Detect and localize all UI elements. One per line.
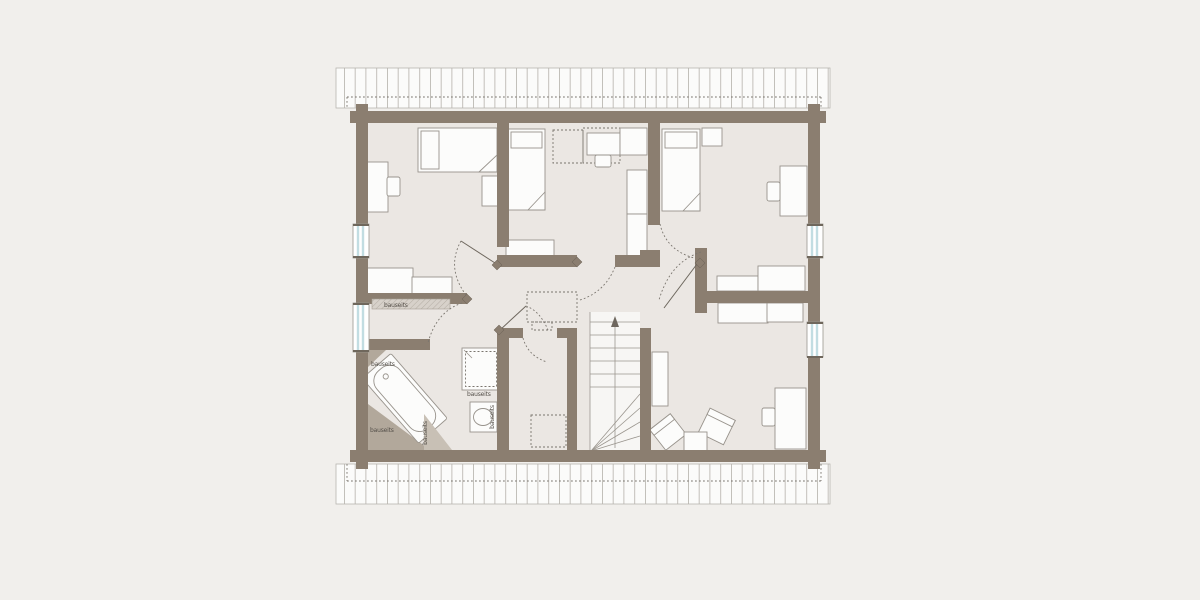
window-left-1 <box>353 224 369 258</box>
desk <box>587 133 620 155</box>
partition-wall <box>557 328 577 338</box>
floor-plan-svg: bauseits bauseits bauseits bauseits baus… <box>0 0 1200 600</box>
floor-plan-page: bauseits bauseits bauseits bauseits baus… <box>0 0 1200 600</box>
partition-wall <box>640 328 651 450</box>
window-left-2 <box>353 303 369 352</box>
partition-wall <box>567 328 577 450</box>
side-table <box>684 432 707 451</box>
outer-wall-left <box>356 104 368 469</box>
staircase <box>590 312 640 451</box>
partition-wall <box>497 328 509 450</box>
dresser <box>758 266 805 291</box>
sofa-seat <box>412 277 452 295</box>
bauseits-label-bath-top: bauseits <box>371 361 395 368</box>
sideboard <box>717 276 758 291</box>
roof-overhang-top <box>336 68 830 108</box>
desk <box>775 388 806 449</box>
chair <box>767 182 780 201</box>
sofa <box>367 268 413 295</box>
pillow <box>511 132 542 148</box>
outer-wall-right <box>808 104 820 469</box>
chair <box>595 155 611 167</box>
chair <box>762 408 775 426</box>
bauseits-label-bath-bottom: bauseits <box>370 427 394 434</box>
partition-wall <box>615 255 660 267</box>
partition-wall <box>695 248 707 313</box>
pillow <box>665 132 697 148</box>
desk <box>780 166 807 216</box>
chair <box>387 177 400 196</box>
nightstand <box>702 128 722 146</box>
shelf <box>652 352 668 406</box>
bathroom-wall <box>368 339 430 350</box>
bench <box>506 240 554 256</box>
sideboard <box>718 303 768 323</box>
partition-wall <box>707 291 808 303</box>
sideboard <box>767 303 803 322</box>
bauseits-label-shelf: bauseits <box>384 302 408 309</box>
window-right-2 <box>807 322 823 358</box>
partition-wall <box>648 123 660 225</box>
pillow <box>421 131 439 169</box>
bauseits-label-basin-rotated: bauseits <box>489 405 496 429</box>
cabinet <box>627 170 647 214</box>
nightstand <box>482 176 499 206</box>
shower <box>462 348 500 390</box>
window-right-1 <box>807 224 823 258</box>
partition-wall <box>497 255 577 267</box>
wardrobe <box>620 128 647 155</box>
bauseits-label-knee-rotated: bauseits <box>422 421 429 445</box>
partition-wall <box>497 123 509 247</box>
bauseits-label-shower: bauseits <box>467 391 491 398</box>
outer-wall-top <box>350 111 826 123</box>
roof-overhang-bottom <box>336 464 830 504</box>
desk <box>365 162 388 212</box>
outer-wall-bottom <box>350 450 826 462</box>
